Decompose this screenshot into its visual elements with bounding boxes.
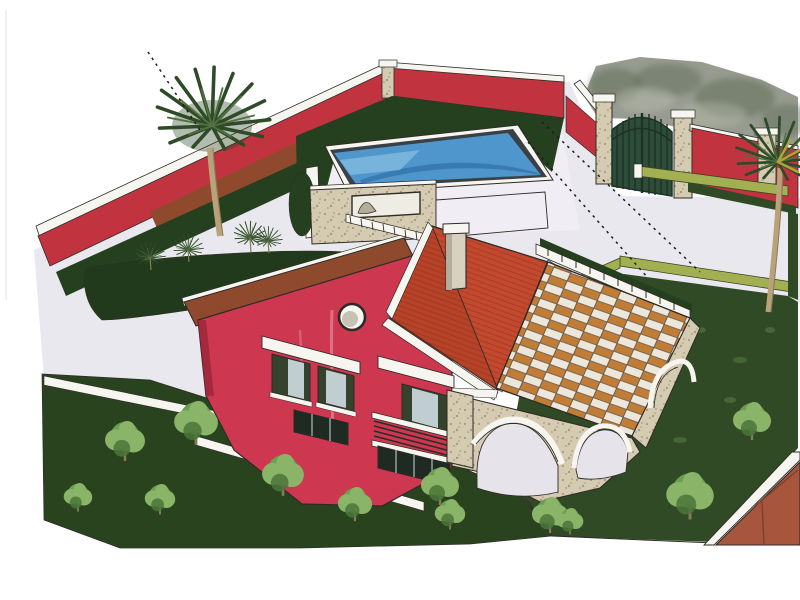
wall-corner-pillar xyxy=(382,64,394,98)
arcade-pillar xyxy=(447,390,473,468)
gate-pillar-left xyxy=(596,98,612,184)
rendering-canvas xyxy=(0,0,800,600)
chimney xyxy=(443,223,469,290)
architectural-rendering xyxy=(0,0,800,600)
